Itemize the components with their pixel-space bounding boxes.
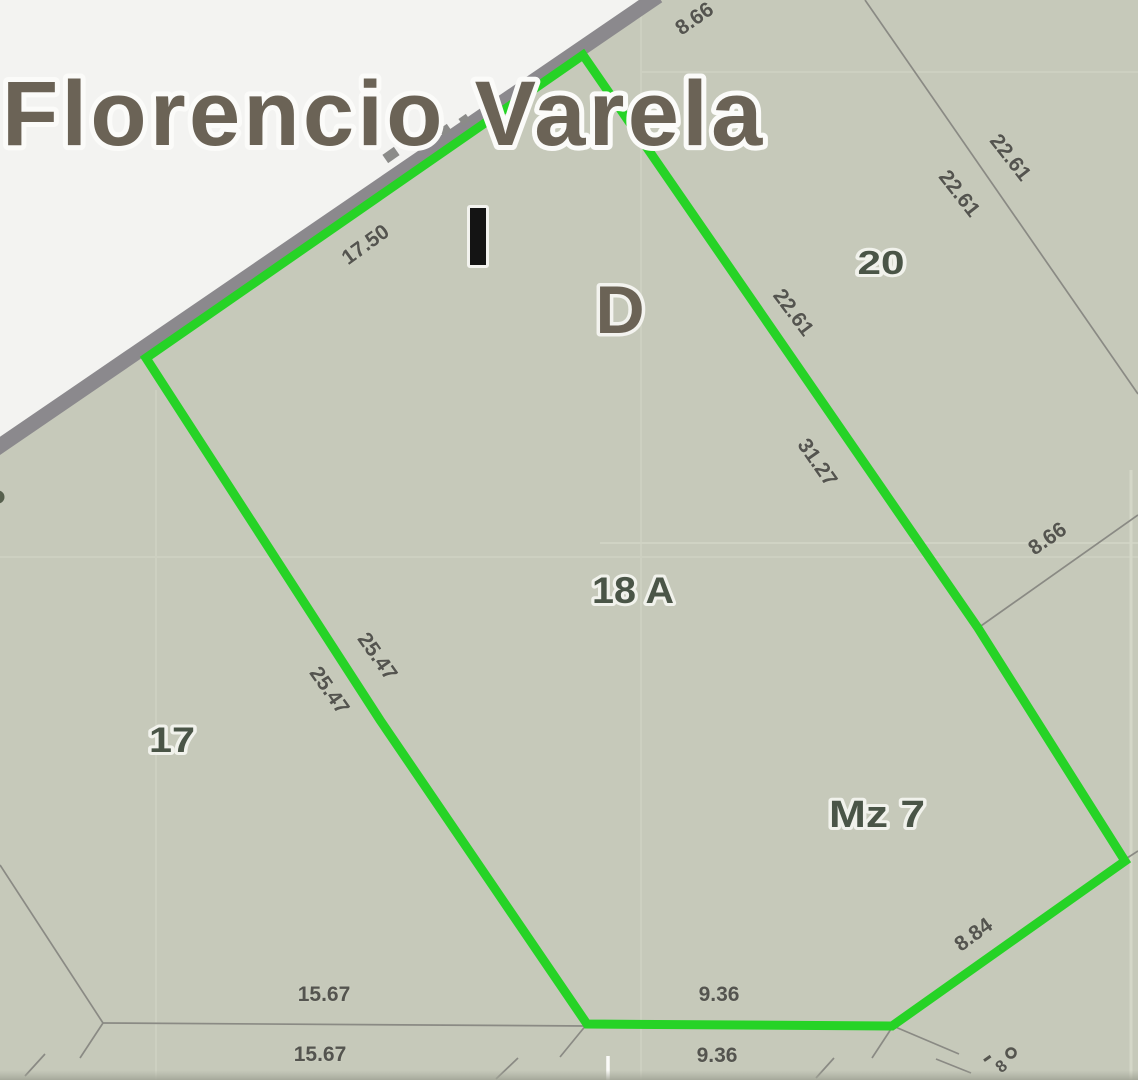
svg-text:18 A: 18 A	[592, 570, 674, 611]
svg-text:17: 17	[149, 721, 195, 760]
svg-text:Florencio Varela: Florencio Varela	[2, 63, 766, 165]
svg-text:15.67: 15.67	[298, 983, 351, 1006]
svg-text:20: 20	[858, 244, 905, 281]
svg-text:9.36: 9.36	[699, 983, 740, 1006]
svg-text:Mz 7: Mz 7	[829, 794, 925, 836]
svg-text:15.67: 15.67	[294, 1043, 347, 1066]
svg-text:D: D	[595, 272, 644, 348]
svg-text:9.36: 9.36	[697, 1044, 738, 1067]
